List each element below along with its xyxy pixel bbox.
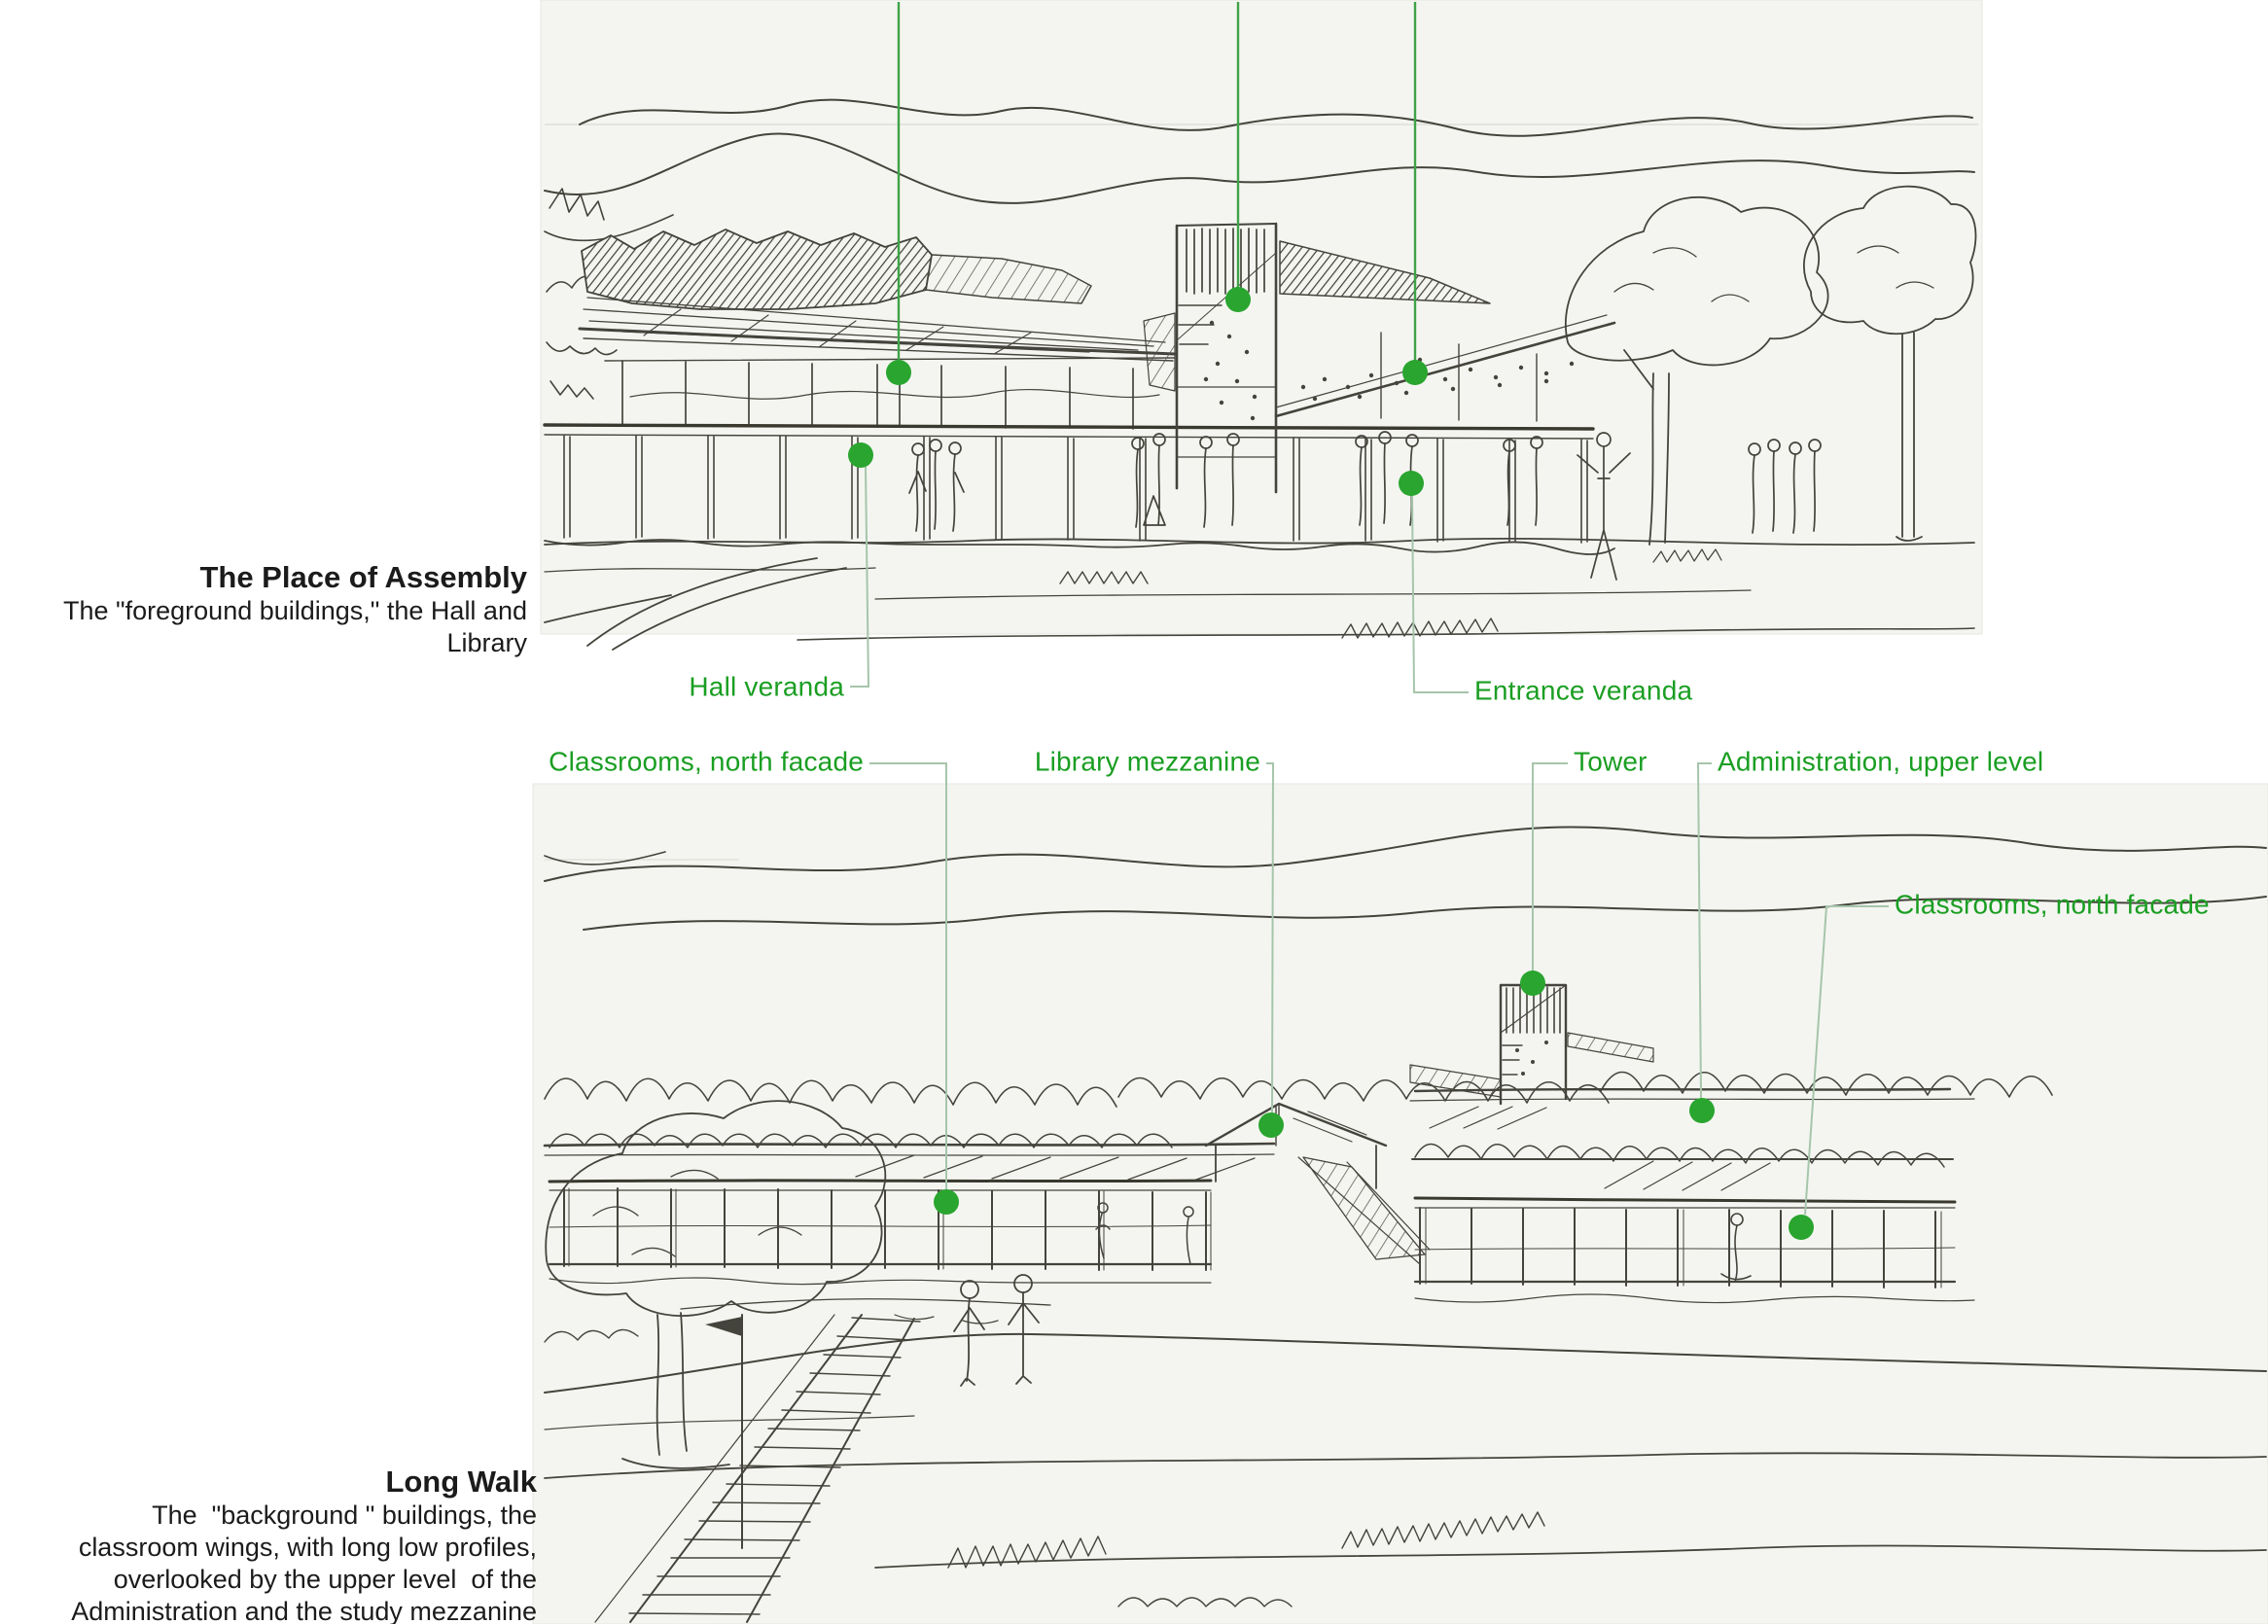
entrance-veranda-dot	[1399, 471, 1424, 496]
annotation-overlay	[0, 0, 2268, 1624]
assembly-caption: The Place of Assembly The "foreground bu…	[63, 560, 527, 659]
administration-upper-leader-line	[1698, 763, 1712, 1098]
tower-leader-line	[1533, 763, 1568, 971]
hall-veranda-dot	[848, 442, 873, 468]
classrooms-north-left-dot	[934, 1189, 959, 1215]
administration-upper-dot	[1689, 1098, 1715, 1123]
library-mezzanine-leader-line	[1266, 763, 1273, 1113]
page: Hall verandaEntrance verandaClassrooms, …	[0, 0, 2268, 1624]
long-walk-caption-title: Long Walk	[71, 1465, 537, 1500]
hall-veranda-leader-line	[850, 467, 868, 687]
classrooms-north-right-dot	[1789, 1215, 1814, 1240]
tower-dot	[1520, 971, 1545, 996]
classrooms-north-right-leader-line	[1805, 906, 1889, 1215]
assembly-marker-tower-dot	[1225, 287, 1251, 312]
classrooms-north-left-leader-line	[869, 763, 946, 1189]
long-walk-caption: Long Walk The "background " buildings, t…	[71, 1465, 537, 1624]
assembly-marker-left-dot	[886, 360, 911, 385]
assembly-caption-subtitle: The "foreground buildings," the Hall and…	[63, 595, 527, 659]
long-walk-caption-subtitle: The "background " buildings, the classro…	[71, 1500, 537, 1624]
assembly-caption-title: The Place of Assembly	[63, 560, 527, 595]
entrance-veranda-leader-line	[1412, 496, 1469, 692]
assembly-marker-right-dot	[1402, 360, 1428, 385]
library-mezzanine-dot	[1258, 1112, 1284, 1138]
